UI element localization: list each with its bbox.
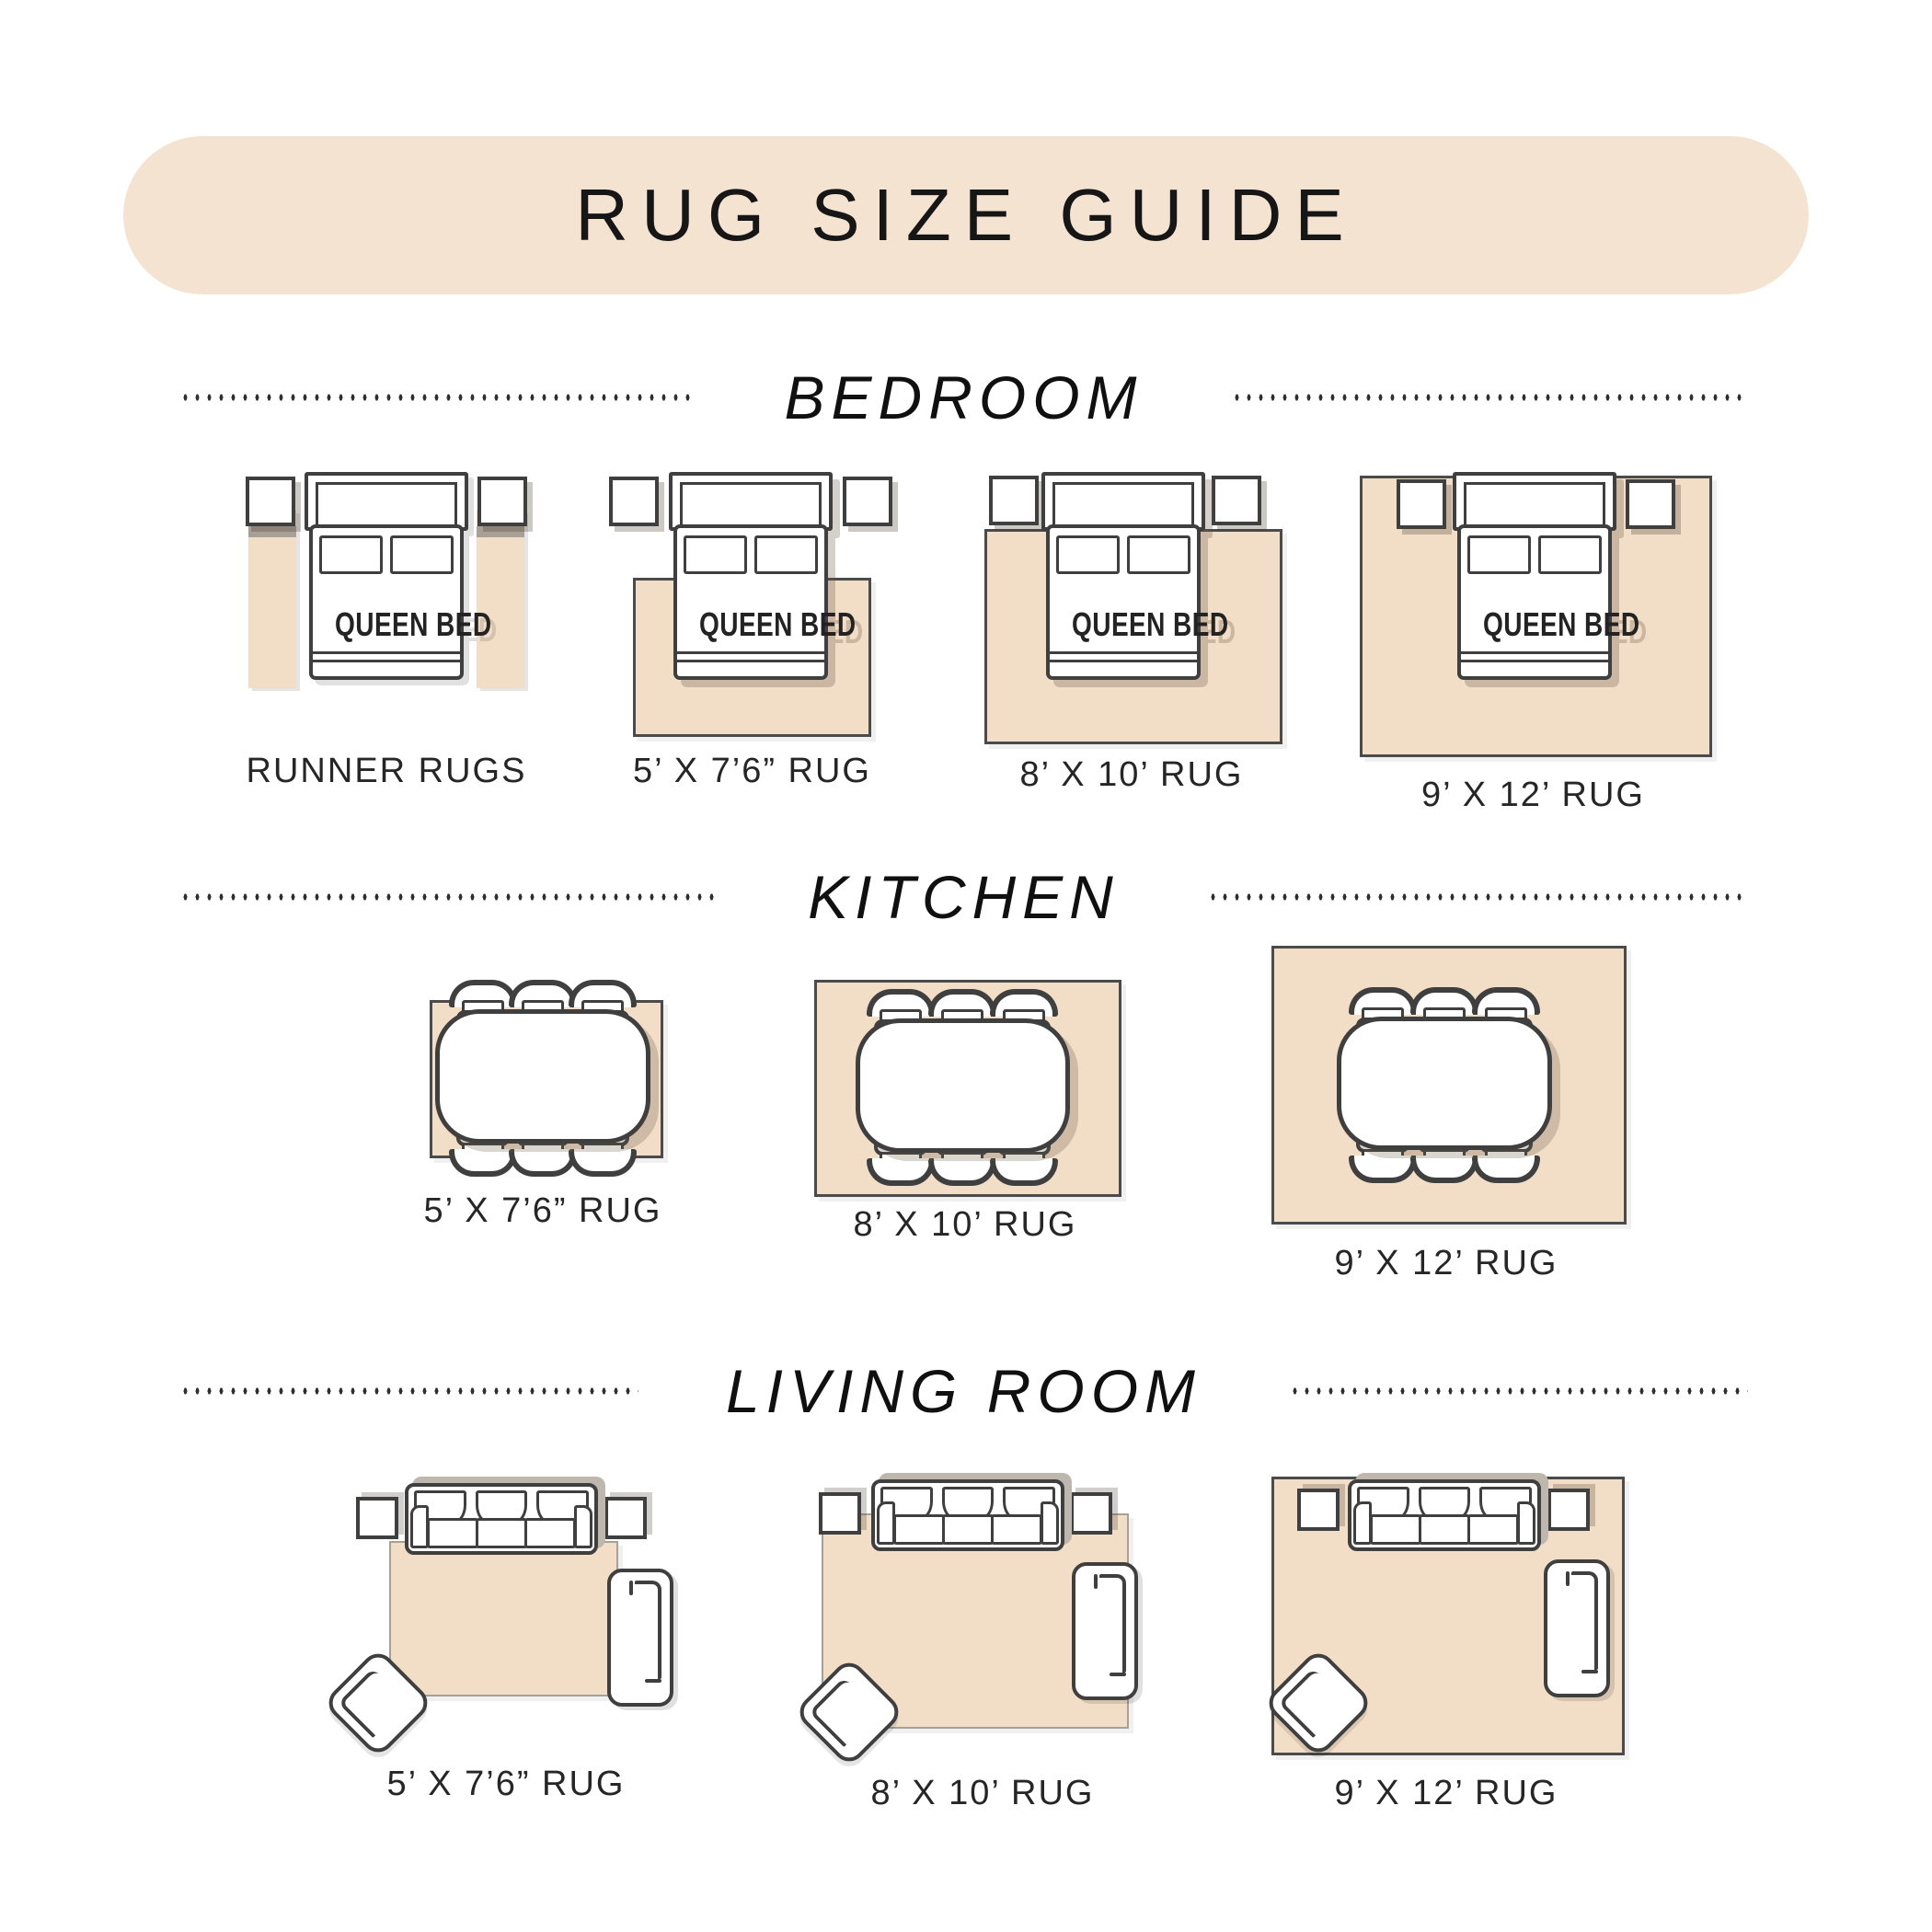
size-label: 5’ X 7’6” RUG	[607, 752, 897, 791]
seat-cushion	[893, 1514, 945, 1545]
bed-label: QUEEN BED	[677, 605, 824, 644]
nightstand	[1212, 476, 1261, 525]
sofa-arm	[1517, 1501, 1535, 1545]
chair-inner-line	[1278, 1668, 1348, 1738]
headboard	[669, 472, 833, 531]
seat-cushion	[524, 1518, 576, 1548]
section-header-bedroom: BEDROOM	[179, 361, 1748, 434]
nightstand	[989, 476, 1039, 525]
headboard	[1453, 472, 1616, 531]
size-label: 5’ X 7’6” RUG	[331, 1765, 681, 1804]
dotted-line	[1207, 891, 1748, 903]
chair-inner-line	[635, 1581, 661, 1679]
dotted-line	[179, 891, 720, 903]
side-table	[1070, 1492, 1112, 1535]
runner-rug	[248, 511, 296, 688]
queen-bed: QUEEN BED	[305, 472, 468, 680]
sofa-arm	[410, 1505, 429, 1548]
title-banner: RUG SIZE GUIDE	[123, 136, 1809, 294]
side-table	[1547, 1489, 1590, 1531]
chair-back	[1472, 1156, 1540, 1183]
pillow	[1467, 535, 1531, 574]
kitchen-scene-9x12: 9’ X 12’ RUG	[1271, 938, 1621, 1297]
dining-table	[435, 1009, 650, 1144]
footboard-line	[1461, 660, 1608, 662]
living-room-scene-5x76: 5’ X 7’6” RUG	[331, 1472, 681, 1831]
chair-back	[1349, 1156, 1417, 1183]
sofa-seat-cushions	[427, 1518, 576, 1548]
bed-label: QUEEN BED	[313, 605, 460, 644]
nightstand	[1397, 479, 1446, 529]
bed-label: QUEEN BED	[1050, 605, 1197, 644]
chair-back	[1410, 1156, 1478, 1183]
nightstand	[477, 477, 527, 526]
headboard	[1041, 472, 1205, 531]
chair-back	[509, 1149, 577, 1177]
chair-back	[569, 1149, 637, 1177]
sofa-arm	[877, 1501, 895, 1545]
nightstand	[246, 477, 295, 526]
bedroom-scene-9x12: QUEEN BED 9’ X 12’ RUG	[1360, 465, 1707, 833]
dotted-line	[1231, 392, 1748, 403]
footboard-line	[677, 660, 824, 662]
pillow	[684, 535, 747, 574]
pillow	[754, 535, 818, 574]
footboard-line	[677, 651, 824, 654]
rug-size-guide-infographic: RUG SIZE GUIDE BEDROOM KITCHEN LIVING RO…	[0, 0, 1932, 1932]
mattress: QUEEN BED	[673, 524, 828, 680]
queen-bed: QUEEN BED	[1041, 472, 1205, 680]
mattress: QUEEN BED	[309, 524, 464, 680]
section-title-living-room: LIVING ROOM	[726, 1356, 1202, 1426]
mattress: QUEEN BED	[1046, 524, 1201, 680]
size-label: 9’ X 12’ RUG	[1271, 1774, 1621, 1813]
bedroom-scene-runner-rugs: QUEEN BED RUNNER RUGS	[239, 465, 534, 833]
section-header-kitchen: KITCHEN	[179, 860, 1748, 934]
sofa-seat-cushions	[893, 1514, 1042, 1545]
section-title-bedroom: BEDROOM	[784, 362, 1143, 432]
size-label: 9’ X 12’ RUG	[1360, 776, 1707, 815]
chair-back	[449, 1149, 517, 1177]
size-label: RUNNER RUGS	[239, 752, 534, 791]
sofa-arm	[1353, 1501, 1372, 1545]
chair-inner-line	[338, 1668, 408, 1738]
headboard	[305, 472, 468, 531]
size-label: 8’ X 10’ RUG	[814, 1205, 1116, 1245]
seat-cushion	[1370, 1514, 1421, 1545]
sofa	[871, 1479, 1064, 1551]
size-label: 8’ X 10’ RUG	[808, 1774, 1157, 1813]
chair-inner-line	[1099, 1574, 1126, 1673]
queen-bed: QUEEN BED	[1453, 472, 1616, 680]
pillow	[1127, 535, 1190, 574]
headboard-inner-line	[316, 482, 457, 527]
living-room-scene-9x12: 9’ X 12’ RUG	[1271, 1470, 1621, 1829]
dotted-line	[179, 392, 696, 403]
sofa	[405, 1483, 598, 1555]
bedroom-scene-5x76: QUEEN BED 5’ X 7’6” RUG	[607, 465, 897, 833]
rug	[389, 1541, 618, 1696]
kitchen-scene-5x76: 5’ X 7’6” RUG	[419, 971, 667, 1247]
accent-chair	[1544, 1559, 1610, 1697]
footboard-line	[1050, 660, 1197, 662]
size-label: 5’ X 7’6” RUG	[419, 1191, 667, 1231]
seat-cushion	[476, 1518, 527, 1548]
chair-back	[867, 1158, 935, 1186]
living-room-scene-8x10: 8’ X 10’ RUG	[808, 1472, 1157, 1831]
size-label: 8’ X 10’ RUG	[984, 755, 1279, 795]
headboard-inner-line	[1464, 482, 1605, 527]
side-table	[604, 1497, 647, 1539]
accent-chair	[607, 1569, 673, 1707]
seat-cushion	[1419, 1514, 1470, 1545]
headboard-inner-line	[680, 482, 822, 527]
mattress: QUEEN BED	[1457, 524, 1612, 680]
nightstand	[1626, 479, 1675, 529]
pillow	[390, 535, 454, 574]
footboard-line	[1461, 651, 1608, 654]
pillow	[1056, 535, 1120, 574]
size-label: 9’ X 12’ RUG	[1271, 1244, 1621, 1283]
sofa	[1348, 1479, 1541, 1551]
seat-cushion	[427, 1518, 478, 1548]
sofa-arm	[1041, 1501, 1059, 1545]
pillow	[1538, 535, 1602, 574]
footboard-line	[1050, 651, 1197, 654]
section-title-kitchen: KITCHEN	[808, 862, 1120, 932]
chair-back	[928, 1158, 996, 1186]
side-table	[819, 1492, 861, 1535]
side-table	[356, 1497, 398, 1539]
accent-chair	[1072, 1562, 1138, 1700]
footboard-line	[313, 651, 460, 654]
kitchen-scene-8x10: 8’ X 10’ RUG	[814, 957, 1116, 1260]
page-title: RUG SIZE GUIDE	[575, 173, 1356, 258]
runner-rug	[477, 511, 524, 688]
chair-inner-line	[809, 1677, 879, 1747]
nightstand	[609, 477, 659, 526]
pillow	[319, 535, 383, 574]
chair-inner-line	[1571, 1571, 1598, 1670]
dining-table	[1337, 1017, 1552, 1150]
nightstand	[843, 477, 892, 526]
sofa-arm	[574, 1505, 592, 1548]
section-header-living-room: LIVING ROOM	[179, 1354, 1748, 1428]
headboard-inner-line	[1052, 482, 1194, 527]
seat-cushion	[991, 1514, 1042, 1545]
dotted-line	[179, 1386, 638, 1397]
seat-cushion	[942, 1514, 994, 1545]
bedroom-scene-8x10: QUEEN BED 8’ X 10’ RUG	[984, 465, 1279, 833]
footboard-line	[313, 660, 460, 662]
seat-cushion	[1467, 1514, 1519, 1545]
chair-back	[990, 1158, 1058, 1186]
nightstand-shadow	[477, 526, 524, 537]
side-table	[1297, 1489, 1340, 1531]
queen-bed: QUEEN BED	[669, 472, 833, 680]
sofa-seat-cushions	[1370, 1514, 1519, 1545]
dotted-line	[1289, 1386, 1748, 1397]
bed-label: QUEEN BED	[1461, 605, 1608, 644]
dining-table	[856, 1018, 1070, 1153]
nightstand-shadow	[248, 526, 296, 537]
